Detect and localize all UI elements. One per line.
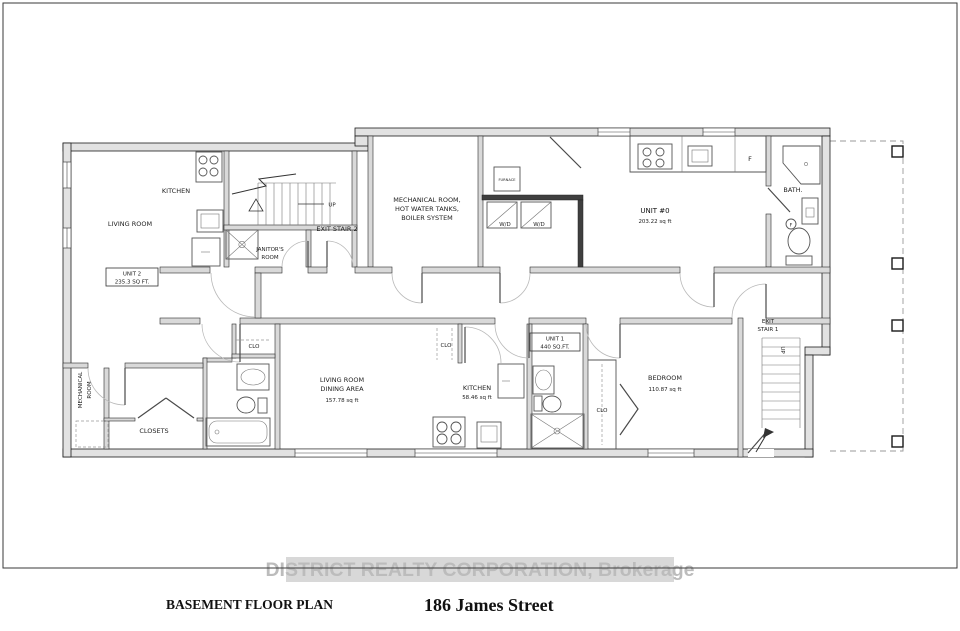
- fridge: [498, 364, 524, 398]
- wall-clo-bottom: [232, 354, 275, 358]
- wall-laundry-dark-v: [578, 200, 583, 267]
- unit1-name: UNIT 1: [546, 337, 564, 343]
- wall-stair2-right: [352, 151, 357, 267]
- mech-equipment-dashed: [76, 421, 108, 447]
- fridge-label: F: [748, 155, 752, 163]
- wall-top-right: [355, 128, 830, 136]
- wall-kitchen2-stair2: [224, 151, 229, 267]
- janitors-room-label: ROOM: [261, 255, 278, 261]
- wall-bath0-lower: [766, 214, 771, 267]
- wall-hall-top: [125, 363, 203, 368]
- wall-top-step: [355, 136, 368, 146]
- vanity-sink: [806, 208, 814, 217]
- mech-lower-label: ROOM: [87, 381, 93, 398]
- plan-title: BASEMENT FLOOR PLAN: [166, 597, 333, 612]
- mech-lower-label: MECHANICAL: [78, 371, 84, 408]
- wall-clo-left: [232, 324, 236, 358]
- kitchen-unit1-label: KITCHEN: [463, 384, 491, 392]
- wall-corridor-bottom: [766, 318, 830, 324]
- kitchen-unit1-area: 58.46 sq ft: [462, 395, 492, 401]
- bedroom-label: BEDROOM: [648, 374, 682, 382]
- toilet-tank: [786, 256, 812, 265]
- wall-stair1-left: [738, 318, 743, 457]
- wall-corridor-top: [160, 267, 210, 273]
- stair2-up-label: UP: [328, 203, 336, 209]
- toilet-bowl: [543, 396, 561, 412]
- washer-dryer-label: W/D: [533, 222, 545, 228]
- door-arc: [680, 273, 714, 307]
- address-title: 186 James Street: [424, 595, 554, 615]
- wall-corridor-top: [355, 267, 392, 273]
- bathtub-inner: [209, 421, 267, 443]
- drain-box-cross: [226, 230, 258, 259]
- vanity: [237, 364, 269, 390]
- unit0-area: 203.22 sq ft: [638, 219, 672, 225]
- column-marker: [892, 146, 903, 157]
- floor-plan-sheet: DISTRICT REALTY CORPORATION, Brokerage: [0, 0, 960, 631]
- living-dining-label: LIVING ROOM: [320, 376, 364, 384]
- doors: [88, 241, 774, 457]
- wall-corridor-top: [530, 267, 680, 273]
- stove: [196, 152, 222, 182]
- mechanical-room-label: MECHANICAL ROOM,: [393, 196, 460, 204]
- watermark-text: DISTRICT REALTY CORPORATION, Brokerage: [265, 559, 694, 581]
- column-marker: [892, 436, 903, 447]
- clo-label: CLO: [440, 343, 452, 349]
- vanity: [802, 198, 818, 224]
- washer-dryer-label: W/D: [499, 222, 511, 228]
- interior-walls: [63, 136, 830, 457]
- bedroom-closet: [588, 360, 638, 449]
- kitchen-unit0-fixtures: F: [630, 136, 766, 172]
- exit-stair2-label: EXIT STAIR 2: [316, 225, 357, 233]
- toilet-bowl: [237, 397, 255, 413]
- door-arc: [392, 273, 422, 303]
- wall-right-jog: [805, 347, 830, 355]
- kitchen-unit2-label: KITCHEN: [162, 187, 190, 195]
- vanity-sink: [241, 369, 265, 385]
- stair2-break-line: [232, 174, 296, 194]
- exterior-walls: [63, 128, 830, 457]
- wall-laundry-dark-h: [482, 195, 583, 200]
- corner-shower: [783, 146, 820, 184]
- exit-stair1-label: STAIR 1: [758, 327, 779, 333]
- wall-right-lower: [805, 355, 813, 457]
- column-marker: [892, 258, 903, 269]
- sink: [688, 146, 712, 166]
- living-room-label: LIVING ROOM: [108, 220, 152, 228]
- toilet-tank: [534, 396, 542, 411]
- exit-stair-2: UP: [232, 174, 336, 225]
- door-arc: [586, 324, 620, 358]
- wall-bath0-upper: [766, 136, 771, 186]
- wall-corridor-top: [714, 267, 830, 273]
- wall-top-left: [63, 143, 368, 151]
- door-leaf-unit0-entry: [550, 137, 581, 168]
- janitor-drain-box: [226, 230, 258, 259]
- unit2-area: 235.3 SQ FT.: [115, 280, 150, 286]
- stair1-up-label: UP: [779, 346, 785, 354]
- toilet-tank: [258, 398, 267, 413]
- unit2-name: UNIT 2: [123, 272, 141, 278]
- door-arc: [282, 241, 308, 267]
- stair1-arrow-head: [763, 428, 774, 438]
- door-arc: [327, 241, 353, 267]
- clo-label: CLO: [248, 344, 260, 350]
- shower-drain: [804, 162, 807, 165]
- wall-corridor-bottom: [240, 318, 495, 324]
- wall-mech-left: [368, 136, 373, 267]
- wall-corridor-top: [308, 267, 327, 273]
- exit-stair-1: UP: [756, 338, 800, 452]
- unit0-name: UNIT #0: [640, 207, 669, 215]
- shower-cross: [531, 414, 584, 448]
- clo-label: CLO: [596, 408, 608, 414]
- door-opening: [748, 449, 774, 457]
- closet-bifold-doors: [620, 384, 638, 435]
- kitchen-unit2-fixtures: [192, 152, 223, 266]
- stair2-rails: [258, 183, 336, 225]
- janitors-room-label: JANITOR'S: [255, 247, 284, 253]
- wall-hall-top: [63, 363, 88, 368]
- wall-clo-mid-right: [458, 324, 462, 363]
- bath-unit0-fixtures: F: [768, 146, 820, 265]
- wall-corridor-left: [255, 273, 261, 318]
- wall-corridor-top: [422, 267, 500, 273]
- wall-corridor-bottom: [529, 318, 586, 324]
- stair2-direction-triangle: [249, 199, 263, 211]
- column-grid-dashed-line: [830, 141, 903, 451]
- living-dining-label: DINING AREA: [320, 385, 364, 393]
- wall-closets-front: [197, 418, 203, 421]
- closet-bifold-doors: [138, 398, 194, 418]
- toilet-bowl: [788, 228, 810, 254]
- wall-unit1-left: [275, 324, 280, 449]
- stair1-treads: [762, 347, 800, 419]
- wall-left: [63, 143, 71, 457]
- unit1-area: 440 SQ.FT.: [540, 345, 570, 351]
- door-arc: [732, 284, 766, 318]
- wall-mech-right: [478, 136, 483, 267]
- bath-label: BATH.: [783, 186, 802, 194]
- room-labels: LIVING ROOM KITCHEN UNIT 2 235.3 SQ FT. …: [78, 186, 803, 435]
- wall-closets-front: [104, 418, 135, 421]
- door-arc: [495, 324, 529, 358]
- mechanical-room-label: HOT WATER TANKS,: [395, 205, 459, 213]
- furnace-label: FURNACE: [498, 178, 516, 182]
- stove: [433, 417, 465, 447]
- wall-corridor-bottom: [620, 318, 732, 324]
- bedroom-area: 110.87 sq ft: [648, 387, 682, 393]
- bath-unit1-fixtures: [531, 366, 584, 448]
- door-arc: [211, 273, 255, 317]
- bathtub: [206, 418, 270, 446]
- column-marker: [892, 320, 903, 331]
- wall-corridor-bottom: [160, 318, 200, 324]
- stove: [638, 144, 672, 169]
- vanity-sink: [536, 370, 552, 390]
- wall-corridor-top: [255, 267, 282, 273]
- floor-drain-letter: F: [790, 222, 793, 228]
- exit-stair1-label: EXIT: [762, 319, 775, 325]
- sheet-border: [3, 3, 957, 568]
- living-dining-area: 157.78 sq ft: [325, 398, 359, 404]
- mechanical-room-label: BOILER SYSTEM: [401, 214, 453, 222]
- floor-plan-drawing: DISTRICT REALTY CORPORATION, Brokerage: [0, 0, 960, 631]
- door-arc: [500, 273, 530, 303]
- closets-label: CLOSETS: [139, 427, 168, 435]
- tub-drain: [215, 430, 219, 434]
